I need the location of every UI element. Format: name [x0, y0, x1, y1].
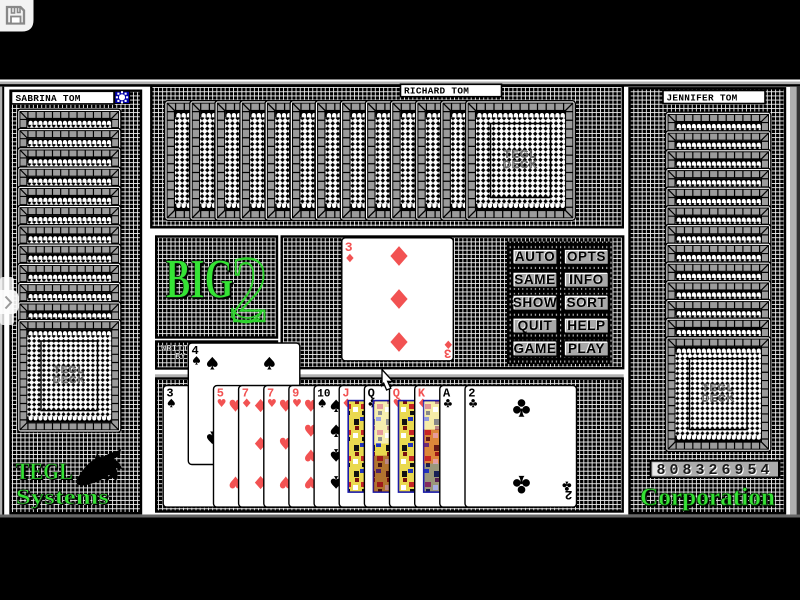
svg-text:7: 7 — [242, 386, 249, 400]
svg-text:AUTO: AUTO — [515, 249, 555, 264]
svg-text:Systems: Systems — [16, 484, 110, 509]
svg-text:4: 4 — [192, 344, 199, 358]
svg-text:JENNIFER TOM: JENNIFER TOM — [667, 93, 738, 104]
svg-text:3: 3 — [345, 240, 353, 255]
svg-text:10: 10 — [317, 388, 330, 400]
svg-text:2: 2 — [231, 238, 268, 342]
svg-text:HELP: HELP — [567, 318, 605, 333]
svg-text:SHOW: SHOW — [513, 295, 557, 310]
svg-text:BY: BY — [175, 352, 186, 362]
svg-text:OPTS: OPTS — [567, 249, 606, 264]
svg-text:SORT: SORT — [566, 295, 606, 310]
svg-text:J: J — [342, 386, 349, 400]
svg-text:BIG: BIG — [166, 249, 234, 310]
svg-text:5: 5 — [217, 386, 224, 400]
svg-text:PLAY: PLAY — [568, 341, 605, 356]
svg-text:SAME: SAME — [514, 272, 555, 287]
svg-text:2: 2 — [468, 386, 475, 400]
svg-text:3: 3 — [166, 386, 173, 400]
svg-text:A: A — [443, 386, 451, 400]
svg-text:INFO: INFO — [569, 272, 604, 287]
svg-text:Q: Q — [393, 386, 400, 400]
svg-text:GAME: GAME — [514, 341, 557, 356]
svg-text:808326954: 808326954 — [656, 462, 773, 479]
svg-text:RICHARD TOM: RICHARD TOM — [404, 86, 469, 97]
svg-text:SABRINA TOM: SABRINA TOM — [16, 93, 81, 104]
svg-text:7: 7 — [267, 386, 274, 400]
svg-text:QUIT: QUIT — [518, 318, 553, 333]
svg-text:Corporation: Corporation — [640, 484, 775, 511]
svg-text:K: K — [418, 386, 426, 400]
svg-text:9: 9 — [292, 386, 299, 400]
svg-text:TEGL: TEGL — [16, 459, 73, 484]
svg-text:3: 3 — [444, 346, 452, 361]
svg-text:Q: Q — [368, 386, 375, 400]
